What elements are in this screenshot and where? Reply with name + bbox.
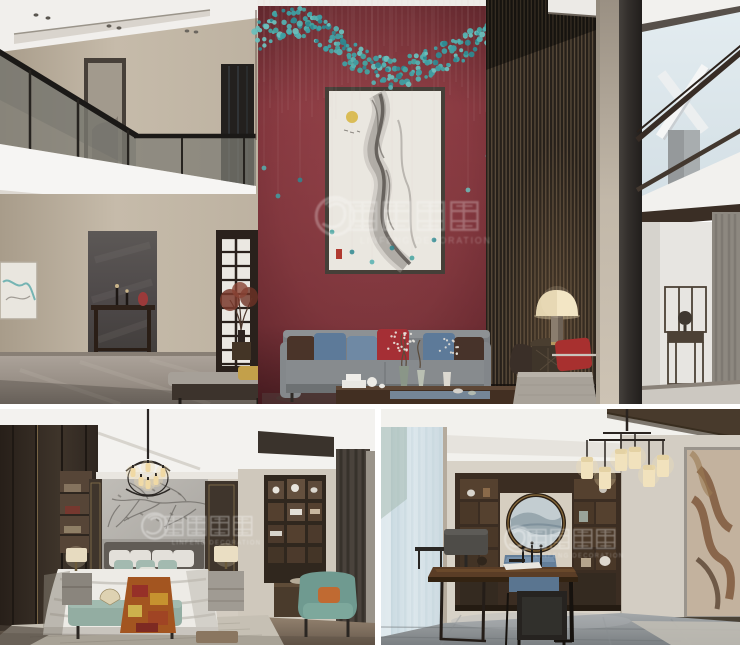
svg-text:LINFENG DECORATION: LINFENG DECORATION (360, 236, 492, 246)
svg-text:LINFENG DECORATION: LINFENG DECORATION (172, 541, 261, 547)
svg-text:LINFENG DECORATION: LINFENG DECORATION (535, 554, 624, 560)
